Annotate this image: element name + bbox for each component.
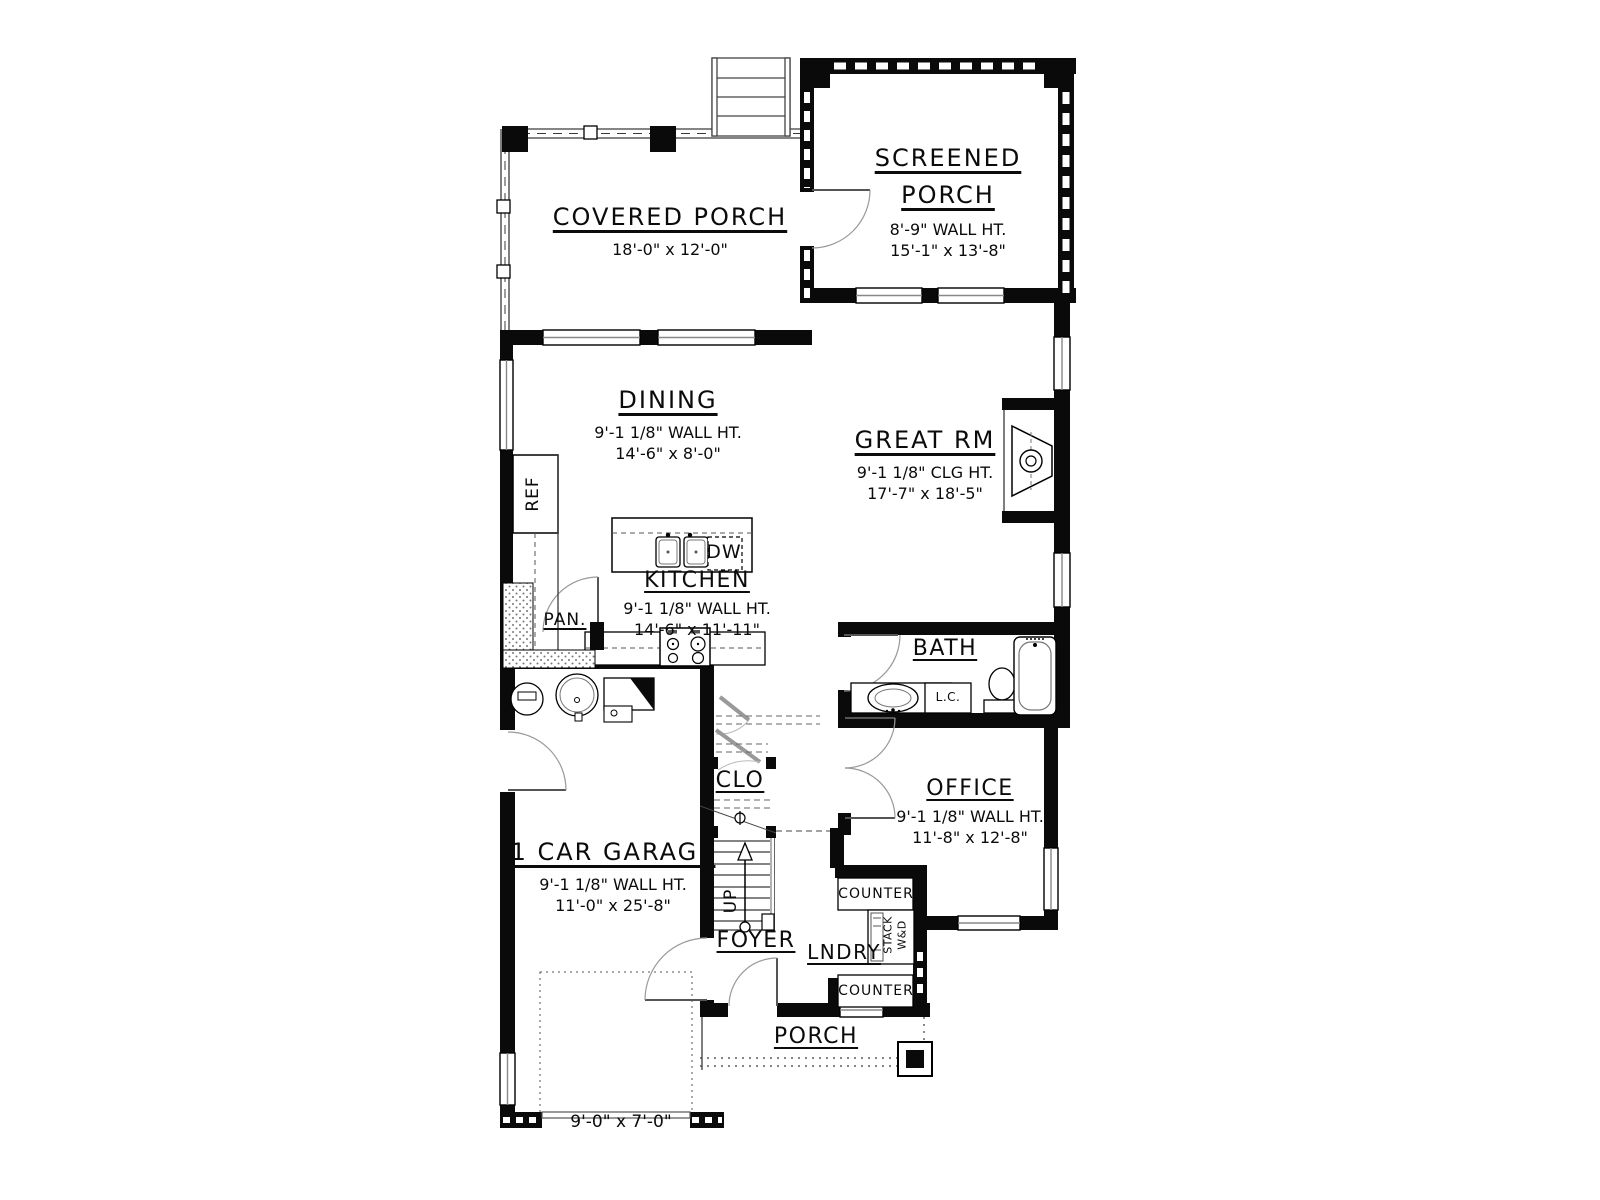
porch-label: PORCH (774, 1024, 858, 1049)
room-name: 1 CAR GARAGE (511, 838, 716, 866)
room-name: COVERED PORCH (553, 203, 787, 231)
room-dims: 18'-0" x 12'-0" (553, 240, 787, 259)
room-ceiling-height: 9'-1 1/8" CLG HT. (855, 463, 996, 482)
counter-upper-label: COUNTER (838, 886, 914, 902)
room-wall-height: 8'-9" WALL HT. (839, 220, 1057, 239)
floor-plan-canvas: COVERED PORCH 18'-0" x 12'-0" SCREENED P… (0, 0, 1600, 1200)
pantry-label: PAN. (544, 610, 587, 630)
linen-cabinet-label: L.C. (936, 690, 961, 704)
bathtub (1014, 637, 1056, 715)
front-door (729, 958, 777, 1006)
stairs-up-label: UP (721, 889, 741, 914)
garage-exterior-door (508, 732, 566, 790)
fireplace (1002, 398, 1056, 523)
window (500, 1053, 515, 1105)
window (658, 330, 755, 345)
room-name: CLO (716, 768, 765, 793)
window (1044, 848, 1058, 910)
window (1054, 337, 1070, 390)
wall-openings (500, 637, 851, 1017)
laundry-label: LNDRY (807, 940, 881, 964)
great-rm-label: GREAT RM 9'-1 1/8" CLG HT. 17'-7" x 18'-… (855, 426, 996, 503)
room-name: BATH (913, 636, 977, 661)
window (500, 360, 513, 450)
floor-plan-drawing (0, 0, 1600, 1200)
refrigerator-label: REF (523, 476, 543, 511)
room-name: SCREENED PORCH (839, 140, 1057, 214)
garage-service-door (645, 938, 707, 1000)
room-dims: 17'-7" x 18'-5" (855, 484, 996, 503)
hall-closet-doors (716, 697, 760, 770)
window (1054, 553, 1070, 607)
room-name: DINING (594, 386, 742, 414)
stack-wd-line1: STACK (881, 916, 895, 954)
closet-label: CLO (716, 768, 765, 793)
stacked-washer-dryer-label: STACK W&D (881, 916, 909, 954)
room-dims: 14'-6" x 11'-11" (623, 620, 771, 639)
room-name: PORCH (774, 1024, 858, 1049)
garage-door-dims-label: 9'-0" x 7'-0" (570, 1112, 671, 1132)
office-label: OFFICE 9'-1 1/8" WALL HT. 11'-8" x 12'-8… (896, 776, 1044, 847)
kitchen-label: KITCHEN 9'-1 1/8" WALL HT. 14'-6" x 11'-… (623, 568, 771, 639)
room-name: FOYER (717, 928, 796, 953)
room-name: GREAT RM (855, 426, 996, 454)
room-dims: 15'-1" x 13'-8" (839, 241, 1057, 260)
stack-wd-line2: W&D (895, 916, 909, 954)
dining-label: DINING 9'-1 1/8" WALL HT. 14'-6" x 8'-0" (594, 386, 742, 463)
room-dims: 11'-8" x 12'-8" (896, 828, 1044, 847)
window (856, 288, 922, 303)
counter-lower-label: COUNTER (838, 983, 914, 999)
dishwasher-label: DW (706, 541, 741, 563)
garage-door (540, 972, 692, 1118)
foyer-label: FOYER (717, 928, 796, 953)
room-wall-height: 9'-1 1/8" WALL HT. (896, 807, 1044, 826)
bath-label: BATH (913, 636, 977, 661)
room-name: KITCHEN (623, 568, 771, 593)
room-name: OFFICE (896, 776, 1044, 801)
room-wall-height: 9'-1 1/8" WALL HT. (594, 423, 742, 442)
room-wall-height: 9'-1 1/8" WALL HT. (511, 875, 716, 894)
covered-porch-label: COVERED PORCH 18'-0" x 12'-0" (553, 203, 787, 259)
room-name: LNDRY (807, 940, 881, 964)
window (938, 288, 1004, 303)
garage-label: 1 CAR GARAGE 9'-1 1/8" WALL HT. 11'-0" x… (511, 838, 716, 915)
exterior-steps (712, 58, 790, 136)
room-dims: 14'-6" x 8'-0" (594, 444, 742, 463)
room-wall-height: 9'-1 1/8" WALL HT. (623, 599, 771, 618)
office-double-door (845, 718, 895, 818)
window (958, 916, 1020, 930)
garage-equipment (511, 674, 654, 722)
screened-porch-label: SCREENED PORCH 8'-9" WALL HT. 15'-1" x 1… (839, 140, 1057, 260)
window (543, 330, 640, 345)
room-dims: 11'-0" x 25'-8" (511, 896, 716, 915)
